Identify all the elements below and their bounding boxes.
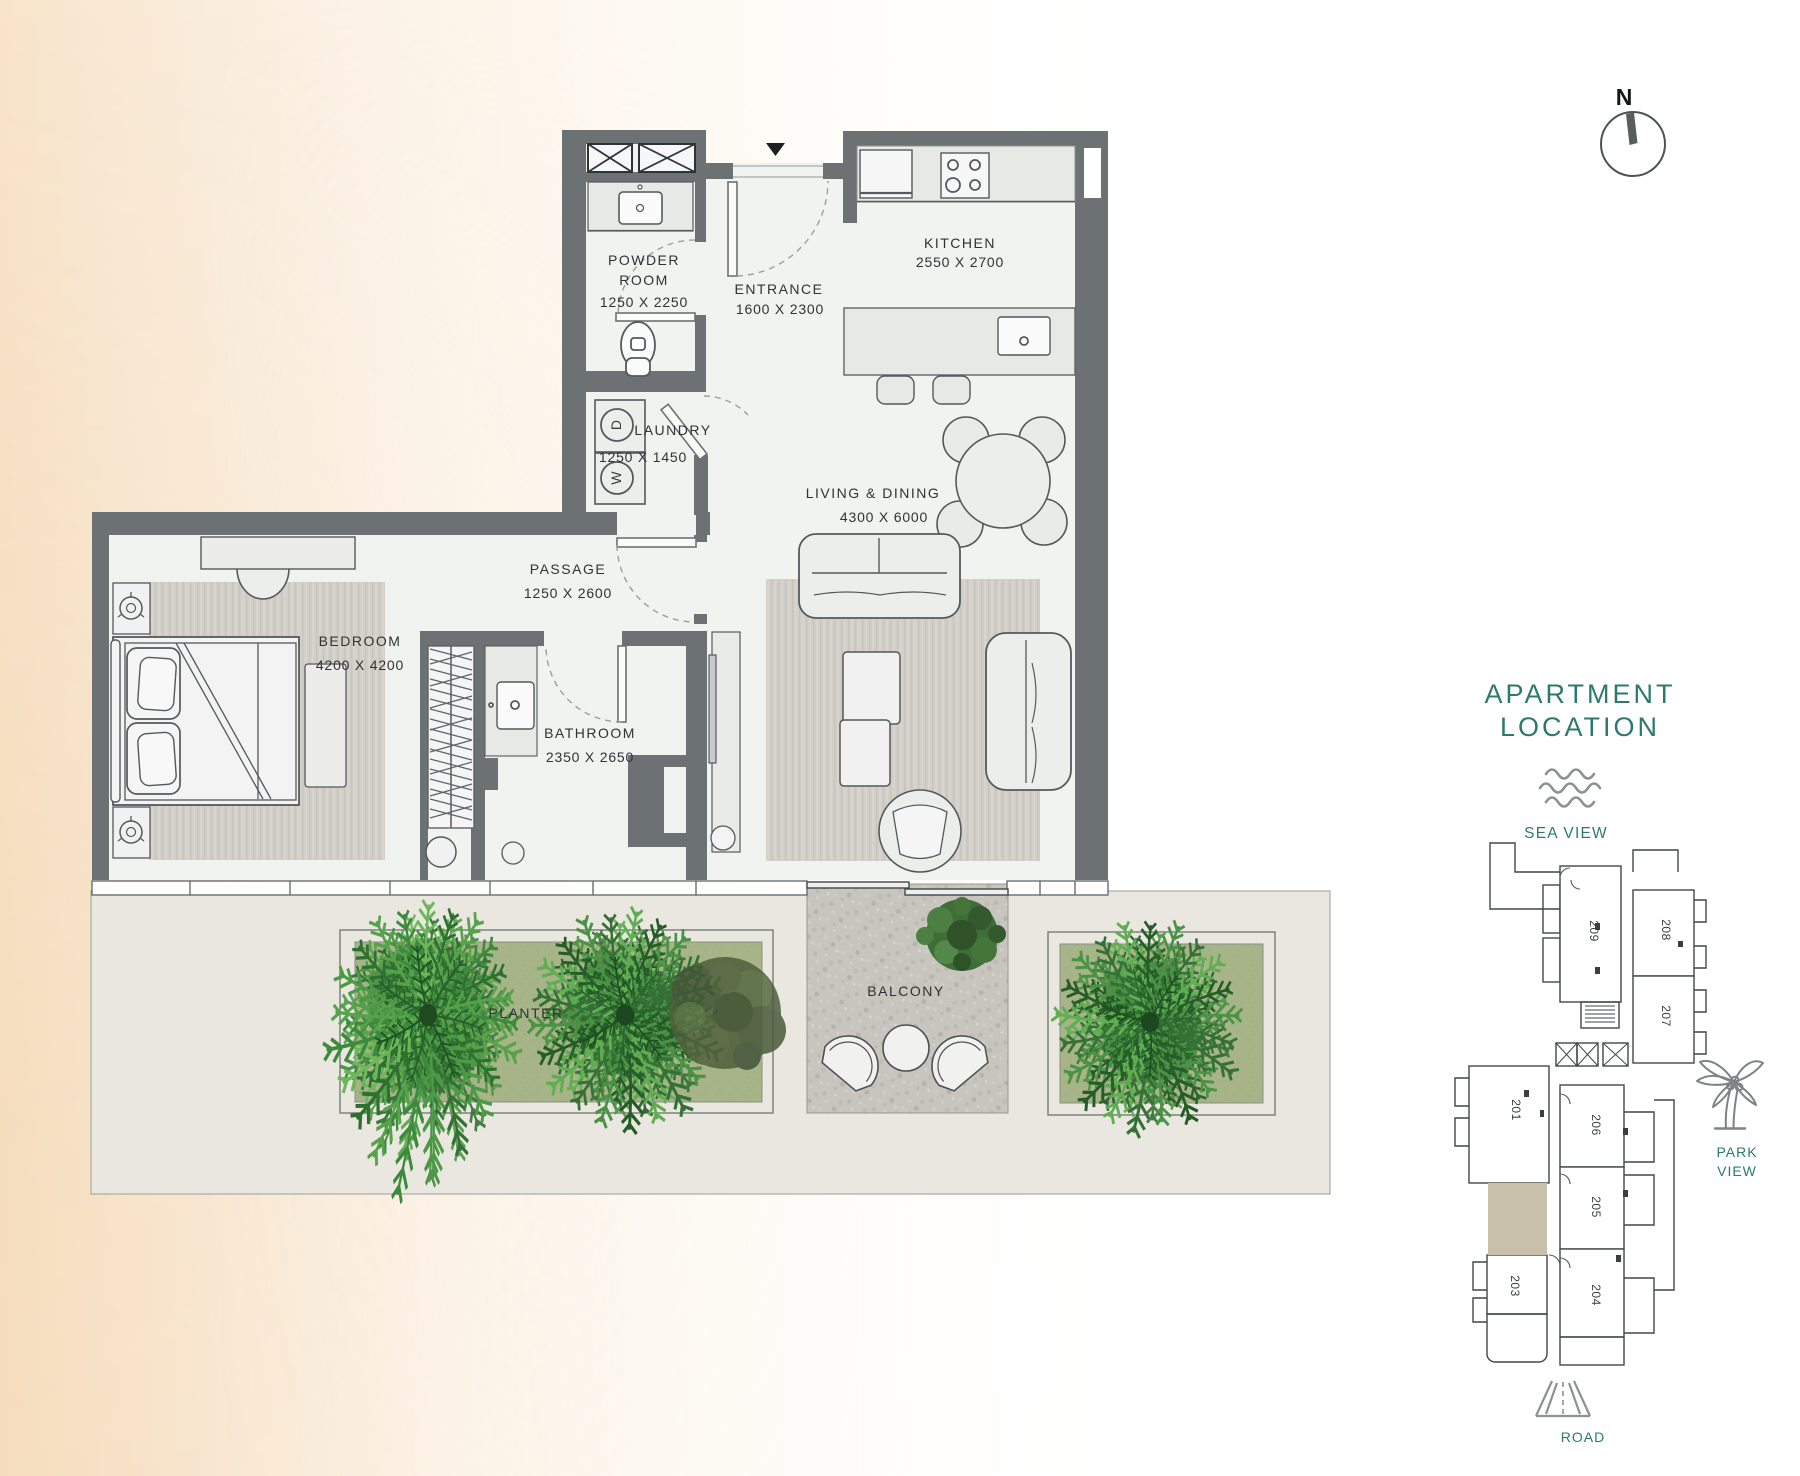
svg-text:1250 X 2600: 1250 X 2600 xyxy=(524,585,612,601)
svg-text:1250 X 2250: 1250 X 2250 xyxy=(600,294,688,310)
svg-text:ROOM: ROOM xyxy=(619,272,669,288)
svg-text:1250 X 1450: 1250 X 1450 xyxy=(599,449,687,465)
svg-text:PLANTER: PLANTER xyxy=(488,1005,563,1021)
svg-text:203: 203 xyxy=(1508,1275,1522,1297)
svg-text:PASSAGE: PASSAGE xyxy=(530,561,606,577)
svg-text:KITCHEN: KITCHEN xyxy=(924,235,996,251)
svg-text:ROAD: ROAD xyxy=(1561,1429,1605,1445)
svg-text:4300 X 6000: 4300 X 6000 xyxy=(840,509,928,525)
svg-text:W: W xyxy=(608,471,624,485)
svg-text:ENTRANCE: ENTRANCE xyxy=(734,281,823,297)
svg-text:205: 205 xyxy=(1589,1196,1603,1218)
svg-text:LIVING & DINING: LIVING & DINING xyxy=(806,485,941,501)
svg-text:LAUNDRY: LAUNDRY xyxy=(634,422,711,438)
svg-text:208: 208 xyxy=(1659,919,1673,941)
svg-text:4200 X 4200: 4200 X 4200 xyxy=(316,657,404,673)
svg-text:206: 206 xyxy=(1589,1114,1603,1136)
svg-text:BATHROOM: BATHROOM xyxy=(544,725,636,741)
svg-text:PARK: PARK xyxy=(1716,1144,1757,1160)
svg-text:POWDER: POWDER xyxy=(608,252,680,268)
svg-text:LOCATION: LOCATION xyxy=(1500,712,1660,742)
svg-text:2350 X 2650: 2350 X 2650 xyxy=(546,749,634,765)
svg-text:N: N xyxy=(1616,84,1633,110)
svg-text:VIEW: VIEW xyxy=(1717,1163,1757,1179)
svg-text:204: 204 xyxy=(1589,1284,1603,1306)
svg-text:209: 209 xyxy=(1587,920,1601,942)
svg-text:BALCONY: BALCONY xyxy=(867,983,944,999)
svg-text:D: D xyxy=(608,420,624,430)
svg-text:APARTMENT: APARTMENT xyxy=(1484,679,1675,709)
svg-text:201: 201 xyxy=(1509,1099,1523,1121)
svg-text:2550 X 2700: 2550 X 2700 xyxy=(916,254,1004,270)
svg-text:SEA VIEW: SEA VIEW xyxy=(1524,825,1608,842)
svg-text:BEDROOM: BEDROOM xyxy=(319,633,402,649)
svg-text:207: 207 xyxy=(1659,1005,1673,1027)
svg-text:1600 X 2300: 1600 X 2300 xyxy=(736,301,824,317)
